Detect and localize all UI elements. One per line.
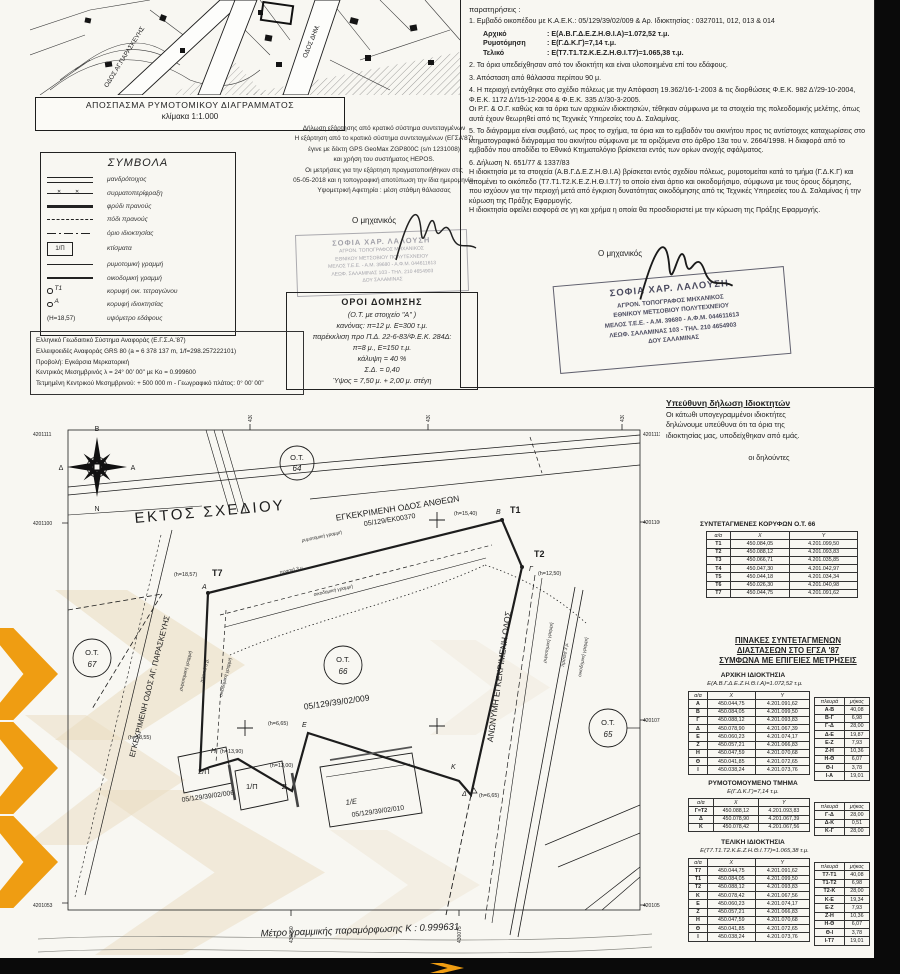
height-label: (h=15,40) (454, 511, 477, 517)
table-row: Τ1450.084,054.201.099,50 (689, 875, 810, 883)
geodetic-reference-box: Ελληνικό Γεωδαιτικό Σύστημα Αναφοράς (Ε.… (30, 331, 304, 395)
block-label: Ο.Τ. (290, 453, 304, 462)
compass-west: Δ (59, 465, 64, 472)
point-t7: Τ7 (212, 568, 223, 578)
rymotomic-map-excerpt: ΟΔΟΣ ΑΓ.ΠΑΡΑΣΚΕΥΗΣ ΟΔΟΣ ΔΗΜ. (30, 0, 460, 95)
initial-sides-table: πλευράμήκοςΑ-Β40,08Β-Γ6,98Γ-Δ28,00Δ-Ε19,… (814, 697, 870, 781)
table-row: Τ7450.044,754.201.091,62 (707, 589, 858, 597)
building-symbol: 1/Π (47, 242, 97, 256)
table-row: Δ-Ε19,87 (815, 731, 870, 739)
parcel-009-label: 05/129/39/02/009 (303, 692, 370, 711)
compass-north: Β (95, 426, 100, 433)
column-header: α/α (689, 859, 708, 867)
column-header: Y (755, 859, 809, 867)
table-row: Ζ-Η10,36 (815, 912, 870, 920)
table-row: Τ2450.088,124.201.093,83 (689, 883, 810, 891)
note-item-5: 5. Το διάγραμμα είναι συμβατό, ως προς τ… (469, 127, 866, 156)
slope-top-symbol (47, 205, 97, 208)
table-row: Ε-Ζ7,93 (815, 904, 870, 912)
height-label: (h=6,65) (479, 793, 499, 799)
point-t1: Τ1 (510, 505, 521, 515)
block-label: Ο.Τ. (336, 655, 350, 664)
column-header: X (707, 859, 755, 867)
site-plan: Β Α Ν Δ ΕΚΤΟΣ ΣΧΕΔΙΟΥ Ο.Τ. 64 Ο.Τ. 67 Ο.… (30, 415, 660, 960)
rymotomoumeno-title: ΡΥΜΟΤΟΜΟΥΜΕΝΟ ΤΜΗΜΑ (688, 780, 818, 787)
legend-item: Τ1κορυφή οικ. τετραγώνου (47, 285, 229, 298)
coord-tick: 4201100 (643, 520, 660, 526)
owners-declaration-title: Υπεύθυνη δήλωση Ιδιοκτητών (666, 398, 872, 408)
property-vertex-symbol: Α (47, 301, 97, 308)
height-label: (h=13,00) (270, 763, 293, 769)
property-limit-symbol (47, 233, 97, 234)
column-header: X (730, 532, 790, 540)
table-row: Γ=Τ2450.088,124.201.093,83 (689, 807, 810, 815)
legend-item: συρματοπερίφραξη (47, 186, 229, 199)
rymotomoumeno-coordinates-table: α/αXYΓ=Τ2450.088,124.201.093,83Δ450.078,… (688, 798, 810, 832)
column-header: μήκος (844, 803, 869, 811)
compass-east: Α (131, 465, 136, 472)
slope-foot-symbol (47, 219, 97, 220)
table-row: Α450.044,754.201.091,62 (689, 700, 810, 708)
table-row: Κ450.078,424.201.067,56 (689, 892, 810, 900)
legend-item: όριο ιδιοκτησίας (47, 227, 229, 240)
column-header: πλευρά (815, 698, 845, 706)
table-row: Ζ450.057,214.201.066,83 (689, 908, 810, 916)
legend-item: φρύδι πρανούς (47, 200, 229, 213)
point-g: Γ (529, 566, 534, 573)
coord-tick: 430050 (248, 415, 254, 422)
block-vertex-symbol: Τ1 (47, 288, 97, 295)
coord-tick: 4201075 (643, 718, 660, 724)
legend-item: 1/Πκτίσματα (47, 240, 229, 258)
point-a: Α (201, 584, 207, 591)
wall-symbol (47, 177, 97, 183)
setback-label: πρασιά 3 μ. (560, 642, 570, 667)
block-66: 66 (339, 667, 348, 676)
column-header: Y (790, 532, 858, 540)
table-row: Γ-Δ28,00 (815, 722, 870, 730)
point-b: Β (496, 509, 501, 516)
note-area-rymotomisi: Ρυμοτόμηση: Ε(Γ.Δ.Κ.Γ)=7,14 τ.μ. (469, 39, 866, 49)
datum-declaration: Δήλωση εξάρτησης από κρατικό σύστημα συν… (286, 124, 482, 197)
column-header: μήκος (844, 863, 869, 871)
note-area-final: Τελικό: Ε(Τ7.Τ1.Τ2.Κ.Ε.Ζ.Η.Θ.Ι.Τ7)=1.065… (469, 49, 866, 59)
table-row: Θ-Ι3,78 (815, 929, 870, 937)
owners-signers-label: οι δηλούντες (666, 453, 872, 462)
column-header: α/α (689, 799, 714, 807)
initial-coordinates-table: α/αXYΑ450.044,754.201.091,62Β450.084,054… (688, 691, 810, 775)
column-header: α/α (707, 532, 731, 540)
column-header: πλευρά (815, 803, 845, 811)
notes-title: παρατηρήσεις : (469, 5, 866, 14)
height-label: (h=18,55) (128, 735, 151, 741)
street-line-symbol (47, 264, 97, 265)
note-item-4: 4. Η περιοχή εντάχθηκε στο σχέδιο πόλεως… (469, 86, 866, 124)
ot66-table-title: ΣΥΝΤΕΤΑΓΜΕΝΕΣ ΚΟΡΥΦΩΝ Ο.Τ. 66 (700, 521, 815, 528)
point-t2: Τ2 (534, 549, 545, 559)
compass-south: Ν (94, 506, 99, 513)
initial-property-title: ΑΡΧΙΚΗ ΙΔΙΟΚΤΗΣΙΑ (688, 672, 818, 679)
column-header: α/α (689, 692, 708, 700)
table-row: Θ450.041,854.201.072,65 (689, 758, 810, 766)
table-row: Ε450.060,234.201.074,17 (689, 900, 810, 908)
tables-heading: ΠΙΝΑΚΕΣ ΣΥΝΤΕΤΑΓΜΕΝΩΝ ΔΙΑΣΤΑΣΕΩΝ ΣΤΟ ΕΓΣ… (686, 636, 890, 666)
table-row: Τ7-Τ140,08 (815, 871, 870, 879)
table-row: Δ450.078,904.201.067,39 (689, 815, 810, 823)
legend-item: οικοδομική γραμμή (47, 271, 229, 284)
coord-tick: 430050 (289, 926, 295, 943)
table-row: Ζ-Η10,36 (815, 747, 870, 755)
block-label: Ο.Τ. (601, 718, 615, 727)
column-header: πλευρά (815, 863, 845, 871)
setback-label: πρασιά 3 μ. (199, 658, 211, 683)
table-row: Κ-Γ28,00 (815, 827, 870, 835)
engineer-signature (388, 198, 478, 276)
out-of-plan-label: ΕΚΤΟΣ ΣΧΕΔΙΟΥ (134, 497, 286, 527)
building-1e-label: 1/Ε (345, 796, 358, 807)
table-row: Γ-Δ28,00 (815, 811, 870, 819)
coord-tick: 430100 (620, 415, 626, 422)
building-line-label: οικοδομική γραμμή (217, 657, 234, 698)
table-row: Τ2450.088,124.201.093,83 (707, 548, 858, 556)
engineer-signature (628, 228, 738, 318)
building-terms-title: ΟΡΟΙ ΔΟΜΗΣΗΣ (287, 297, 477, 307)
table-row: Κ450.078,424.201.067,56 (689, 823, 810, 831)
building-line-label: οικοδομική γραμμή (313, 583, 354, 598)
map-caption-title: ΑΠΟΣΠΑΣΜΑ ΡΥΜΟΤΟΜΙΚΟΥ ΔΙΑΓΡΑΜΜΑΤΟΣ (36, 100, 344, 110)
table-row: Ι450.038,244.201.073,76 (689, 933, 810, 941)
coord-tick: 430075 (426, 415, 432, 422)
block-67: 67 (88, 660, 97, 669)
ot66-coordinates-table: α/αXYΤ1450.084,054.201.099,50Τ2450.088,1… (706, 531, 858, 598)
note-item-2: 2. Τα όρια υπεδείχθησαν από τον ιδιοκτήτ… (469, 61, 866, 71)
table-row: Η-Θ6,07 (815, 755, 870, 763)
coord-tick: 430075 (457, 926, 463, 943)
initial-property-area: Ε(Α.Β.Γ.Δ.Ε.Ζ.Η.Θ.Ι.Α)=1.072,52 τ.μ. (680, 681, 830, 687)
column-header: μήκος (844, 698, 869, 706)
owners-declaration: Υπεύθυνη δήλωση Ιδιοκτητών Οι κάτωθι υπο… (666, 398, 872, 462)
table-row: Η450.047,594.201.070,68 (689, 749, 810, 757)
legend-item: μανδρότοιχος (47, 173, 229, 186)
coord-tick: 4201053 (643, 903, 660, 909)
height-label: (h=12,50) (538, 571, 561, 577)
setback-label: πρασιά 3 μ. (279, 565, 304, 576)
table-row: Δ-Κ0,51 (815, 819, 870, 827)
block-64: 64 (293, 464, 302, 473)
legend-item: πόδι πρανούς (47, 213, 229, 226)
block-label: Ο.Τ. (85, 648, 99, 657)
table-row: Τ5450.044,184.201.034,34 (707, 573, 858, 581)
table-row: Ζ450.057,214.201.066,83 (689, 741, 810, 749)
table-row: Γ450.088,124.201.093,83 (689, 716, 810, 724)
coord-tick: 4201111 (643, 432, 660, 438)
table-row: Τ6450.026,304.201.040,98 (707, 581, 858, 589)
building-terms-box: ΟΡΟΙ ΔΟΜΗΣΗΣ (Ο.Τ. με στοιχείο "Α" ) καν… (286, 292, 478, 390)
table-row: Ι-Α19,01 (815, 772, 870, 780)
table-row: Ι450.038,244.201.073,76 (689, 766, 810, 774)
rymotomoumeno-area: Ε(Γ.Δ.Κ.Γ)=7,14 τ.μ. (688, 789, 818, 795)
table-row: Τ1450.084,054.201.099,50 (707, 540, 858, 548)
table-row: Θ450.041,854.201.072,65 (689, 925, 810, 933)
coord-tick: 4201111 (33, 432, 52, 438)
street-line-label: ρυμοτομική γραμμή (177, 650, 194, 693)
table-row: Η450.047,594.201.070,68 (689, 916, 810, 924)
point-e: Ε (302, 722, 307, 729)
note-item-3: 3. Απόσταση από θάλασσα περίπου 90 μ. (469, 74, 866, 84)
column-header: X (707, 692, 755, 700)
table-row: Α-Β40,08 (815, 706, 870, 714)
table-row: Δ450.078,904.201.067,39 (689, 725, 810, 733)
table-row: Θ-Ι3,78 (815, 764, 870, 772)
table-row: Ε450.060,234.201.074,17 (689, 733, 810, 741)
coord-tick: 4201053 (33, 903, 53, 909)
height-label: (h=6,65) (268, 721, 288, 727)
note-area-initial: Αρχικό: Ε(Α.Β.Γ.Δ.Ε.Ζ.Η.Θ.Ι.Α)=1.072,52 … (469, 30, 866, 40)
block-65: 65 (604, 730, 613, 739)
column-header: X (713, 799, 758, 807)
column-header: Y (758, 799, 809, 807)
building-2p-label: 2/Π (198, 767, 210, 776)
footer-logo-chevron (430, 963, 464, 973)
note-item-1: 1. Εμβαδό οικοπέδου με Κ.Α.Ε.Κ.: 05/129/… (469, 17, 866, 27)
compass-rose (67, 437, 127, 497)
owners-declaration-body: Οι κάτωθι υπογεγραμμένοι ιδιοκτήτες δηλώ… (666, 410, 872, 441)
table-row: Ε-Ζ7,93 (815, 739, 870, 747)
point-z: Ζ (281, 784, 287, 791)
column-header: Y (755, 692, 809, 700)
point-d: Δ (461, 791, 467, 798)
point-k: Κ (451, 764, 456, 771)
table-row: Κ-Ε19,34 (815, 896, 870, 904)
street-line-label: ρυμοτομική γραμμή (300, 529, 343, 545)
building-1p-label: 1/Π (246, 782, 258, 791)
note-item-6: 6. Δήλωση Ν. 651/77 & 1337/83 Η ιδιοκτησ… (469, 159, 866, 216)
road-anonymous-label: ΑΝΩΝΥΜΗ ΕΓΚΕΚΡΙΜΕΝΗ ΟΔΟΣ (485, 610, 513, 742)
table-row: Ι-Τ719,01 (815, 937, 870, 945)
ground-height-symbol: (Η=18,57) (47, 315, 97, 322)
table-row: Β-Γ6,98 (815, 714, 870, 722)
table-row: Τ3450.066,714.201.035,85 (707, 556, 858, 564)
street-line-label: ρυμοτομική γραμμή (541, 622, 555, 665)
symbols-legend: ΣΥΜΒΟΛΑ μανδρότοιχος συρματοπερίφραξη φρ… (40, 152, 236, 336)
height-label: (h=13,90) (220, 749, 243, 755)
height-label: (h=18,57) (174, 572, 197, 578)
legend-item: Ακορυφή ιδιοκτησίας (47, 298, 229, 311)
building-line-label: οικοδομική γραμμή (576, 636, 590, 677)
table-row: Τ7450.044,754.201.091,62 (689, 867, 810, 875)
legend-item: ρυμοτομική γραμμή (47, 258, 229, 271)
table-row: Η-Θ6,07 (815, 920, 870, 928)
table-row: Β450.084,054.201.099,50 (689, 708, 810, 716)
legend-item: (Η=18,57)υψόμετρο εδάφους (47, 312, 229, 325)
final-property-title: ΤΕΛΙΚΗ ΙΔΙΟΚΤΗΣΙΑ (688, 839, 818, 846)
table-row: Τ2-Κ28,00 (815, 887, 870, 895)
coord-tick: 4201100 (33, 521, 52, 527)
final-coordinates-table: α/αXYΤ7450.044,754.201.091,62Τ1450.084,0… (688, 858, 810, 942)
map-caption-scale: κλίμακα 1:1.000 (36, 112, 344, 121)
table-row: Τ1-Τ26,98 (815, 879, 870, 887)
rymotomoumeno-sides-table: πλευράμήκοςΓ-Δ28,00Δ-Κ0,51Κ-Γ28,00 (814, 802, 870, 836)
wire-fence-symbol (47, 193, 97, 194)
building-line-symbol (47, 277, 97, 279)
table-row: Τ4450.047,304.201.042,97 (707, 565, 858, 573)
final-sides-table: πλευράμήκοςΤ7-Τ140,08Τ1-Τ26,98Τ2-Κ28,00Κ… (814, 862, 870, 946)
final-property-area: Ε(Τ7.Τ1.Τ2.Κ.Ε.Ζ.Η.Θ.Ι.Τ7)=1.065,38 τ.μ. (672, 848, 837, 854)
symbols-title: ΣΥΜΒΟΛΑ (47, 157, 229, 169)
